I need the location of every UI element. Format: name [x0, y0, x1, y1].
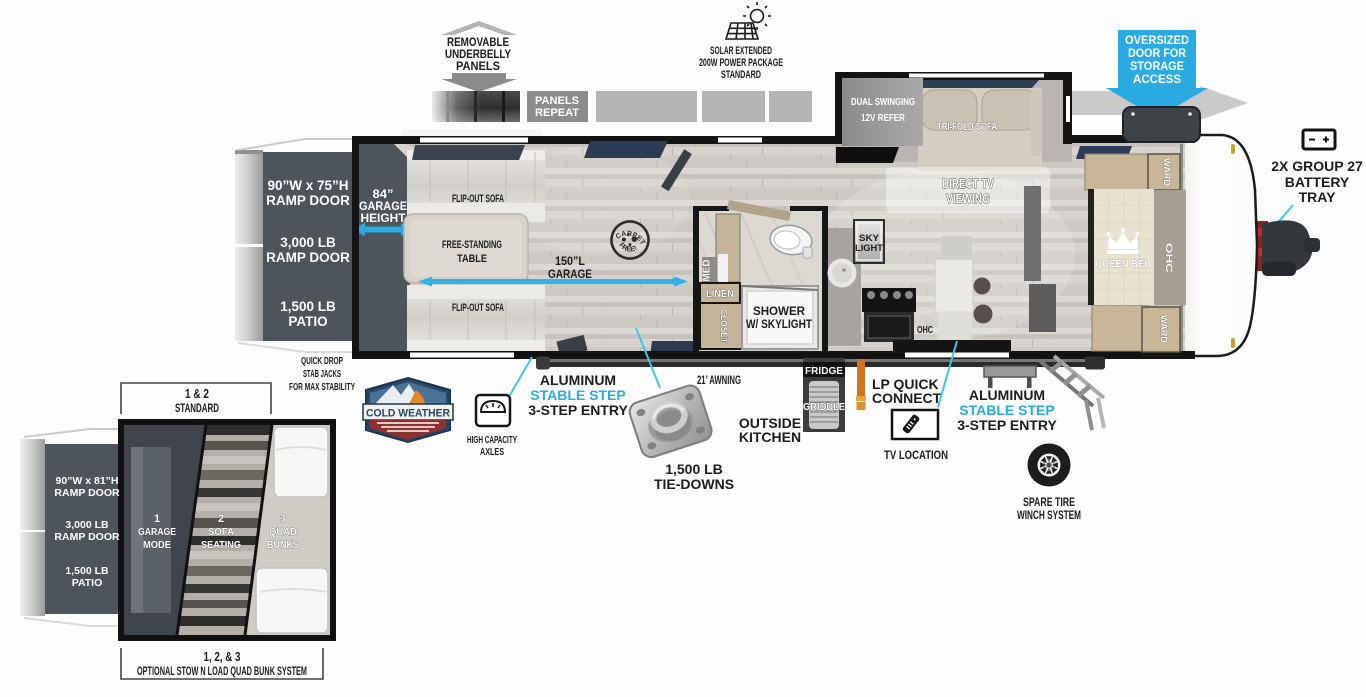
svg-text:HEIGHT: HEIGHT	[361, 213, 406, 225]
svg-text:SEATING: SEATING	[201, 539, 241, 551]
svg-text:SKY: SKY	[859, 233, 879, 243]
svg-text:QUAD: QUAD	[269, 526, 297, 538]
svg-text:GARAGE: GARAGE	[138, 526, 176, 538]
svg-text:FOR MAX STABILITY: FOR MAX STABILITY	[289, 382, 355, 393]
svg-text:QUEEN BED: QUEEN BED	[1095, 258, 1151, 270]
svg-text:TABLE: TABLE	[457, 253, 487, 265]
svg-text:PATIO: PATIO	[72, 577, 103, 589]
svg-text:PANELS: PANELS	[535, 95, 579, 107]
svg-text:KITCHEN: KITCHEN	[739, 429, 801, 445]
svg-text:VIEWING: VIEWING	[946, 191, 990, 206]
svg-text:RAMP DOOR: RAMP DOOR	[54, 531, 120, 543]
svg-text:MED: MED	[702, 260, 713, 282]
svg-text:WARD: WARD	[1158, 315, 1169, 343]
svg-text:GARAGE: GARAGE	[548, 267, 592, 281]
svg-text:STANDARD: STANDARD	[721, 69, 761, 81]
svg-text:150”L: 150”L	[555, 254, 585, 268]
svg-text:TV LOCATION: TV LOCATION	[884, 448, 948, 462]
svg-text:OVERSIZED: OVERSIZED	[1125, 33, 1189, 47]
svg-text:CLOSET: CLOSET	[719, 309, 729, 343]
svg-text:3: 3	[280, 513, 286, 525]
svg-text:STAB JACKS: STAB JACKS	[303, 369, 341, 380]
svg-text:RAMP DOOR: RAMP DOOR	[266, 193, 350, 208]
svg-text:OHC: OHC	[1163, 243, 1174, 273]
svg-text:MODE: MODE	[143, 539, 171, 551]
svg-text:LIGHT: LIGHT	[855, 243, 884, 253]
svg-text:PATIO: PATIO	[288, 314, 327, 329]
svg-text:HIGH CAPACITY: HIGH CAPACITY	[467, 434, 517, 446]
svg-text:COLD WEATHER: COLD WEATHER	[366, 408, 450, 420]
svg-text:RAMP DOOR: RAMP DOOR	[54, 487, 120, 499]
svg-text:SHOWER: SHOWER	[753, 306, 806, 318]
svg-text:PANELS: PANELS	[456, 61, 500, 73]
svg-text:STABLE STEP: STABLE STEP	[959, 402, 1054, 418]
svg-text:ALUMINUM: ALUMINUM	[540, 372, 616, 388]
svg-text:WARD: WARD	[1161, 158, 1172, 186]
svg-text:ALUMINUM: ALUMINUM	[969, 387, 1045, 403]
svg-text:3-STEP ENTRY: 3-STEP ENTRY	[528, 402, 628, 418]
svg-text:GRIDDLE: GRIDDLE	[803, 402, 845, 413]
svg-text:FLIP-OUT SOFA: FLIP-OUT SOFA	[452, 193, 504, 205]
svg-text:DUAL SWINGING: DUAL SWINGING	[851, 96, 915, 108]
svg-text:OHC: OHC	[917, 324, 933, 336]
svg-text:FRIDGE: FRIDGE	[805, 366, 843, 377]
svg-text:ACCESS: ACCESS	[1133, 72, 1181, 86]
svg-text:1,500 LB: 1,500 LB	[65, 565, 109, 577]
svg-text:1,500 LB: 1,500 LB	[280, 299, 336, 314]
svg-text:3,000 LB: 3,000 LB	[280, 235, 336, 250]
svg-text:STORAGE: STORAGE	[1130, 59, 1184, 73]
svg-text:84”: 84”	[373, 189, 394, 201]
svg-text:UNDERBELLY: UNDERBELLY	[445, 49, 511, 61]
svg-text:3-STEP ENTRY: 3-STEP ENTRY	[957, 417, 1057, 433]
svg-text:BATTERY: BATTERY	[1285, 174, 1350, 190]
svg-text:DIRECT TV: DIRECT TV	[942, 176, 994, 191]
svg-text:90”W x 81”H: 90”W x 81”H	[55, 475, 118, 487]
svg-text:STABLE STEP: STABLE STEP	[530, 387, 625, 403]
svg-text:LINEN: LINEN	[706, 289, 734, 300]
svg-text:BUNKS: BUNKS	[267, 539, 299, 551]
svg-text:SPARE TIRE: SPARE TIRE	[1023, 497, 1075, 509]
svg-text:CONNECT: CONNECT	[872, 390, 942, 406]
svg-text:AXLES: AXLES	[480, 446, 504, 458]
svg-text:DOOR FOR: DOOR FOR	[1128, 46, 1186, 60]
svg-text:REMOVABLE: REMOVABLE	[447, 37, 509, 49]
svg-text:FLIP-OUT SOFA: FLIP-OUT SOFA	[452, 302, 504, 314]
svg-text:GARAGE: GARAGE	[359, 201, 407, 213]
svg-text:SOLAR EXTENDED: SOLAR EXTENDED	[710, 45, 772, 57]
svg-text:12V REFER: 12V REFER	[861, 112, 905, 124]
svg-text:200W POWER PACKAGE: 200W POWER PACKAGE	[699, 57, 783, 69]
svg-text:STANDARD: STANDARD	[175, 403, 219, 415]
svg-text:2: 2	[218, 513, 224, 525]
svg-text:3,000 LB: 3,000 LB	[65, 519, 109, 531]
svg-text:TIE-DOWNS: TIE-DOWNS	[654, 476, 734, 492]
svg-text:21’ AWNING: 21’ AWNING	[697, 375, 741, 387]
svg-text:90”W x 75”H: 90”W x 75”H	[267, 178, 348, 193]
svg-text:WINCH SYSTEM: WINCH SYSTEM	[1017, 510, 1081, 522]
svg-text:TRAY: TRAY	[1299, 189, 1336, 205]
svg-text:OPTIONAL STOW N LOAD QUAD BUNK: OPTIONAL STOW N LOAD QUAD BUNK SYSTEM	[137, 666, 307, 678]
svg-text:1 & 2: 1 & 2	[185, 387, 209, 401]
svg-text:1: 1	[154, 513, 160, 525]
svg-text:1, 2, & 3: 1, 2, & 3	[204, 649, 241, 664]
svg-text:1,500 LB: 1,500 LB	[665, 461, 723, 477]
svg-text:FREE-STANDING: FREE-STANDING	[442, 239, 502, 251]
svg-text:REPEAT: REPEAT	[535, 107, 579, 119]
svg-text:TRI-FOLD SOFA: TRI-FOLD SOFA	[937, 121, 997, 133]
svg-text:QUICK DROP: QUICK DROP	[301, 356, 343, 367]
svg-text:2X GROUP 27: 2X GROUP 27	[1271, 158, 1363, 174]
svg-text:W/ SKYLIGHT: W/ SKYLIGHT	[746, 319, 812, 331]
svg-text:RAMP DOOR: RAMP DOOR	[266, 250, 350, 265]
svg-text:SOFA: SOFA	[208, 526, 234, 538]
